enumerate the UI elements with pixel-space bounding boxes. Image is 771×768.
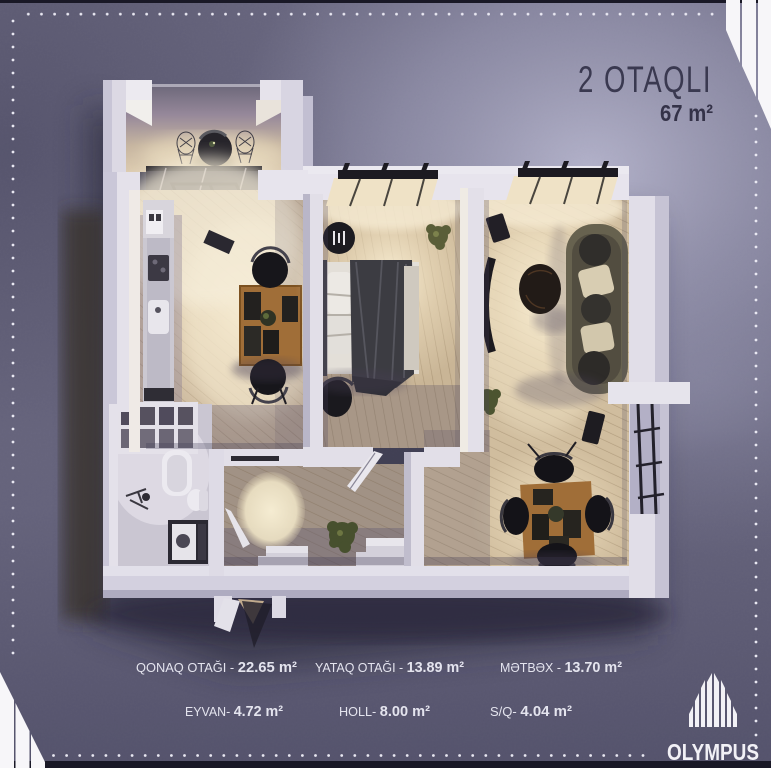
svg-text:YATAQ OTAĞI - 13.89 m²: YATAQ OTAĞI - 13.89 m²	[315, 659, 464, 676]
svg-text:QONAQ OTAĞI - 22.65 m²: QONAQ OTAĞI - 22.65 m²	[136, 659, 297, 676]
svg-text:S/Q- 4.04 m²: S/Q- 4.04 m²	[490, 703, 572, 720]
svg-text:2 OTAQLI: 2 OTAQLI	[578, 59, 712, 100]
svg-text:OLYMPUS: OLYMPUS	[667, 739, 759, 765]
svg-text:EYVAN- 4.72 m²: EYVAN- 4.72 m²	[185, 703, 283, 720]
svg-text:MƏTBƏX - 13.70 m²: MƏTBƏX - 13.70 m²	[500, 659, 622, 676]
svg-text:67 m²: 67 m²	[660, 100, 713, 126]
svg-text:HOLL- 8.00 m²: HOLL- 8.00 m²	[339, 703, 430, 720]
